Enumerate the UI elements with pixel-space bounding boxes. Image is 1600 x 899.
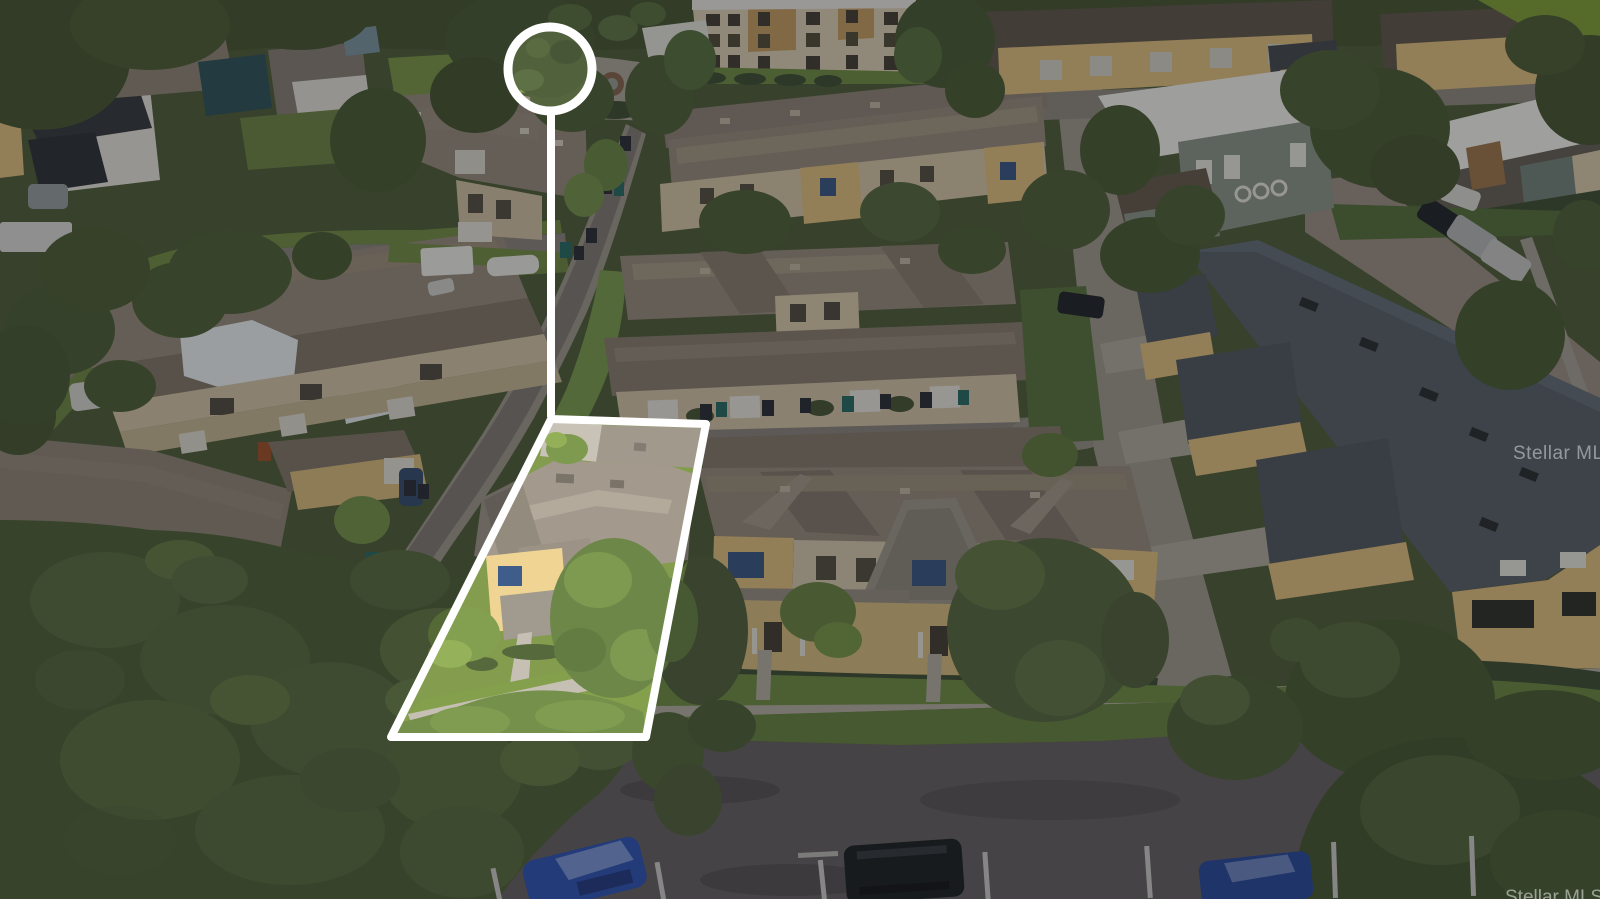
svg-text:Stellar MLS: Stellar MLS — [1513, 443, 1600, 464]
svg-text:Stellar MLS: Stellar MLS — [1505, 887, 1600, 899]
